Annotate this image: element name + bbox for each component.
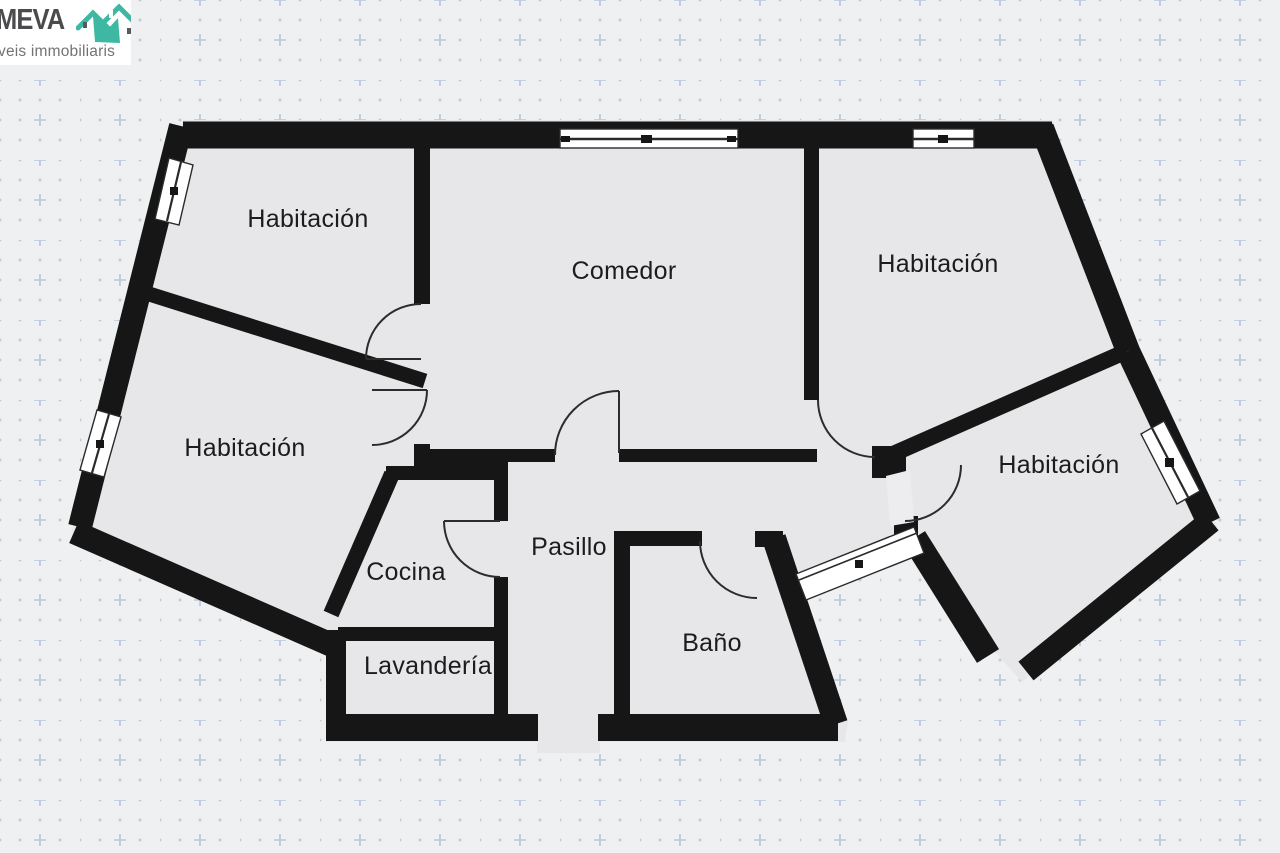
room-label-bano: Baño — [682, 629, 742, 657]
wall-bano-left — [614, 531, 630, 721]
agency-logo: MEVA veis immobiliaris — [0, 0, 131, 65]
doorway-threshold-se-room — [886, 470, 914, 526]
room-label-habitacion-w: Habitación — [184, 434, 305, 462]
room-label-comedor: Comedor — [572, 257, 677, 285]
room-label-lavanderia: Lavandería — [364, 652, 492, 680]
wall-comedor-bottom-right — [619, 449, 817, 462]
floorplan-canvas: Habitación Comedor Habitación Habitación… — [0, 0, 1280, 853]
wall-cocina-top — [386, 466, 430, 480]
room-label-habitacion-se: Habitación — [998, 451, 1119, 479]
room-label-habitacion-nw: Habitación — [247, 205, 368, 233]
entrance-threshold — [537, 700, 600, 753]
floorplan-screenshot: Habitación Comedor Habitación Habitación… — [0, 0, 1280, 853]
agency-logo-tagline: veis immobiliaris — [0, 43, 131, 61]
room-label-habitacion-ne: Habitación — [877, 250, 998, 278]
room-label-cocina: Cocina — [366, 558, 446, 586]
wall-comedor-right — [804, 140, 819, 400]
agency-logo-brand: MEVA — [0, 0, 64, 40]
wall-bottom-right — [598, 714, 838, 741]
houses-icon — [76, 3, 131, 47]
wall-lavanderia-top — [338, 627, 508, 641]
wall-bano-top-right-block — [755, 531, 783, 547]
wall-bottom-left — [326, 714, 538, 741]
window-ne-top — [913, 129, 974, 148]
window-comedor-top — [560, 129, 738, 148]
wall-comedor-left — [414, 140, 430, 304]
room-label-pasillo: Pasillo — [531, 533, 607, 561]
wall-bano-top — [614, 531, 702, 546]
wall-pasillo-left-lower — [494, 577, 508, 714]
wall-pasillo-left-upper — [494, 458, 508, 521]
